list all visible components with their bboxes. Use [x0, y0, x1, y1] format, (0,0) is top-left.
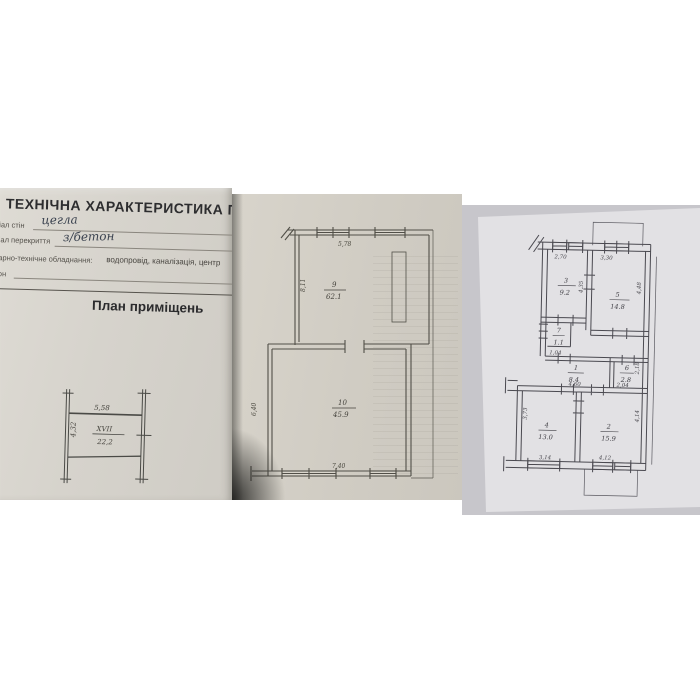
room9-left-dimension: 8,11 — [300, 279, 307, 292]
room6-side-dimension: 2,18 — [635, 361, 641, 375]
plan-sketch-room: 5,58 4,32 XVII 22,2 — [47, 385, 160, 493]
document-page: ТЕХНІЧНА ХАРАКТЕРИСТИКА П іал стін цегла… — [0, 188, 232, 500]
field-extra-label: он — [0, 269, 6, 278]
field-ceiling-value: з/бетон — [63, 229, 115, 244]
sketch-top-dimension: 5,58 — [94, 404, 110, 412]
room3-number: 3 — [564, 277, 568, 285]
room2-side-dimension: 4,14 — [635, 409, 641, 423]
room2-number: 2 — [606, 423, 611, 431]
sketch-left-dimension: 4,32 — [69, 421, 77, 438]
document-title: ТЕХНІЧНА ХАРАКТЕРИСТИКА П — [6, 195, 232, 219]
floorplan-middle: 5,78 8,11 9 62.1 6,40 10 45.9 7,40 — [232, 194, 462, 500]
corridor-bottom-dimension: 4,60 — [567, 382, 581, 388]
room9-top-dimension: 5,78 — [338, 241, 352, 248]
plan-outer-boundary — [411, 230, 433, 478]
room5-top-dimension: 3,30 — [600, 255, 613, 261]
floorplan-right: 2,70 4,35 3 9.2 3,30 4,48 5 14.8 7 1.1 1… — [462, 205, 700, 515]
field-extra-underline — [14, 278, 232, 285]
document-photo-middle: 5,78 8,11 9 62.1 6,40 10 45.9 7,40 — [232, 194, 462, 500]
field-walls-value: цегла — [41, 212, 78, 227]
room9-area: 62.1 — [326, 293, 342, 301]
room10-bottom-dimension: 7,40 — [332, 463, 346, 470]
sketch-room-area: 22,2 — [96, 438, 113, 446]
corridor-number: 1 — [574, 364, 578, 372]
room4-bottom-dimension: 3,14 — [539, 455, 552, 461]
section-divider — [0, 288, 232, 296]
room3-side-dimension: 4,35 — [579, 280, 585, 294]
room4-side-dimension: 3,73 — [523, 407, 529, 420]
room2-bottom-dimension: 4,12 — [598, 455, 612, 461]
field-walls-label: іал стін — [0, 220, 25, 230]
document-photo-left: ТЕХНІЧНА ХАРАКТЕРИСТИКА П іал стін цегла… — [0, 188, 232, 500]
field-ceiling-label: іал перекриття — [0, 235, 50, 245]
room10-number: 10 — [338, 399, 347, 407]
room9-number: 9 — [332, 281, 337, 289]
room4-area: 13.0 — [538, 433, 553, 441]
room2-area: 15.9 — [601, 434, 616, 442]
field-equipment-value: водопровід, каналізація, центр — [106, 255, 220, 267]
plan-paper-sheet — [478, 208, 700, 512]
plan-walls — [251, 227, 433, 481]
room10-area: 45.9 — [332, 411, 349, 419]
listing-photo-collage: ТЕХНІЧНА ХАРАКТЕРИСТИКА П іал стін цегла… — [0, 0, 700, 700]
room3-top-dimension: 2,70 — [553, 254, 567, 260]
field-ceiling-underline — [55, 246, 232, 252]
room5-area: 14.8 — [610, 303, 625, 311]
room3-area: 9.2 — [560, 288, 571, 296]
room6-number: 6 — [625, 364, 629, 372]
closet-area: 1.1 — [553, 338, 564, 346]
plan-heading: План приміщень — [92, 298, 204, 316]
room6-bottom-dimension: 2,04 — [615, 383, 629, 389]
sketch-room-number: XVII — [95, 425, 112, 433]
room5-side-dimension: 4,48 — [637, 282, 643, 296]
room10-left-dimension: 6,40 — [251, 402, 258, 416]
closet-bottom-dimension: 1,04 — [549, 350, 562, 356]
room5-number: 5 — [616, 291, 620, 299]
document-photo-right: 2,70 4,35 3 9.2 3,30 4,48 5 14.8 7 1.1 1… — [462, 205, 700, 515]
room4-number: 4 — [544, 421, 549, 429]
field-equipment-label: арно-технічне обладнання: — [0, 253, 93, 265]
